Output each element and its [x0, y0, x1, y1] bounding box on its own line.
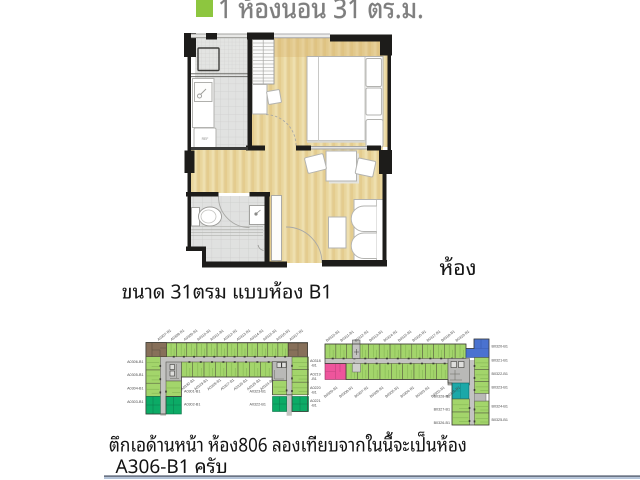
svg-text:-B1: -B1 [311, 377, 317, 381]
svg-text:-B1: -B1 [311, 390, 317, 394]
svg-text:A0323-B1: A0323-B1 [250, 389, 266, 393]
svg-text:A0306-B1: A0306-B1 [127, 360, 143, 364]
svg-text:A0302-B1: A0302-B1 [184, 403, 200, 407]
svg-text:A0301-B1: A0301-B1 [184, 389, 200, 393]
svg-text:A0220: A0220 [310, 386, 321, 390]
svg-text:A0305-B1: A0305-B1 [127, 373, 143, 377]
svg-text:B0326-B1: B0326-B1 [434, 421, 450, 425]
svg-text:A0318: A0318 [310, 359, 321, 363]
svg-text:A0219: A0219 [310, 372, 321, 376]
svg-text:-B1: -B1 [311, 364, 317, 368]
svg-text:B0323-B1: B0323-B1 [492, 385, 508, 389]
svg-text:REF: REF [202, 137, 209, 141]
svg-text:-B1: -B1 [311, 404, 317, 408]
svg-text:B0325-B1: B0325-B1 [492, 418, 508, 422]
svg-text:B0320-B1: B0320-B1 [492, 345, 508, 349]
svg-text:B0322-B1: B0322-B1 [492, 372, 508, 376]
svg-text:A0304-B1: A0304-B1 [127, 387, 143, 391]
svg-text:B0328-B1: B0328-B1 [434, 394, 450, 398]
svg-text:B0327-B1: B0327-B1 [434, 408, 450, 412]
svg-text:A0322-B1: A0322-B1 [250, 403, 266, 407]
svg-text:A0221: A0221 [310, 399, 321, 403]
svg-text:A0303-B1: A0303-B1 [127, 400, 143, 404]
svg-text:B0324-B1: B0324-B1 [492, 405, 508, 409]
svg-text:B0321-B1: B0321-B1 [492, 358, 508, 362]
